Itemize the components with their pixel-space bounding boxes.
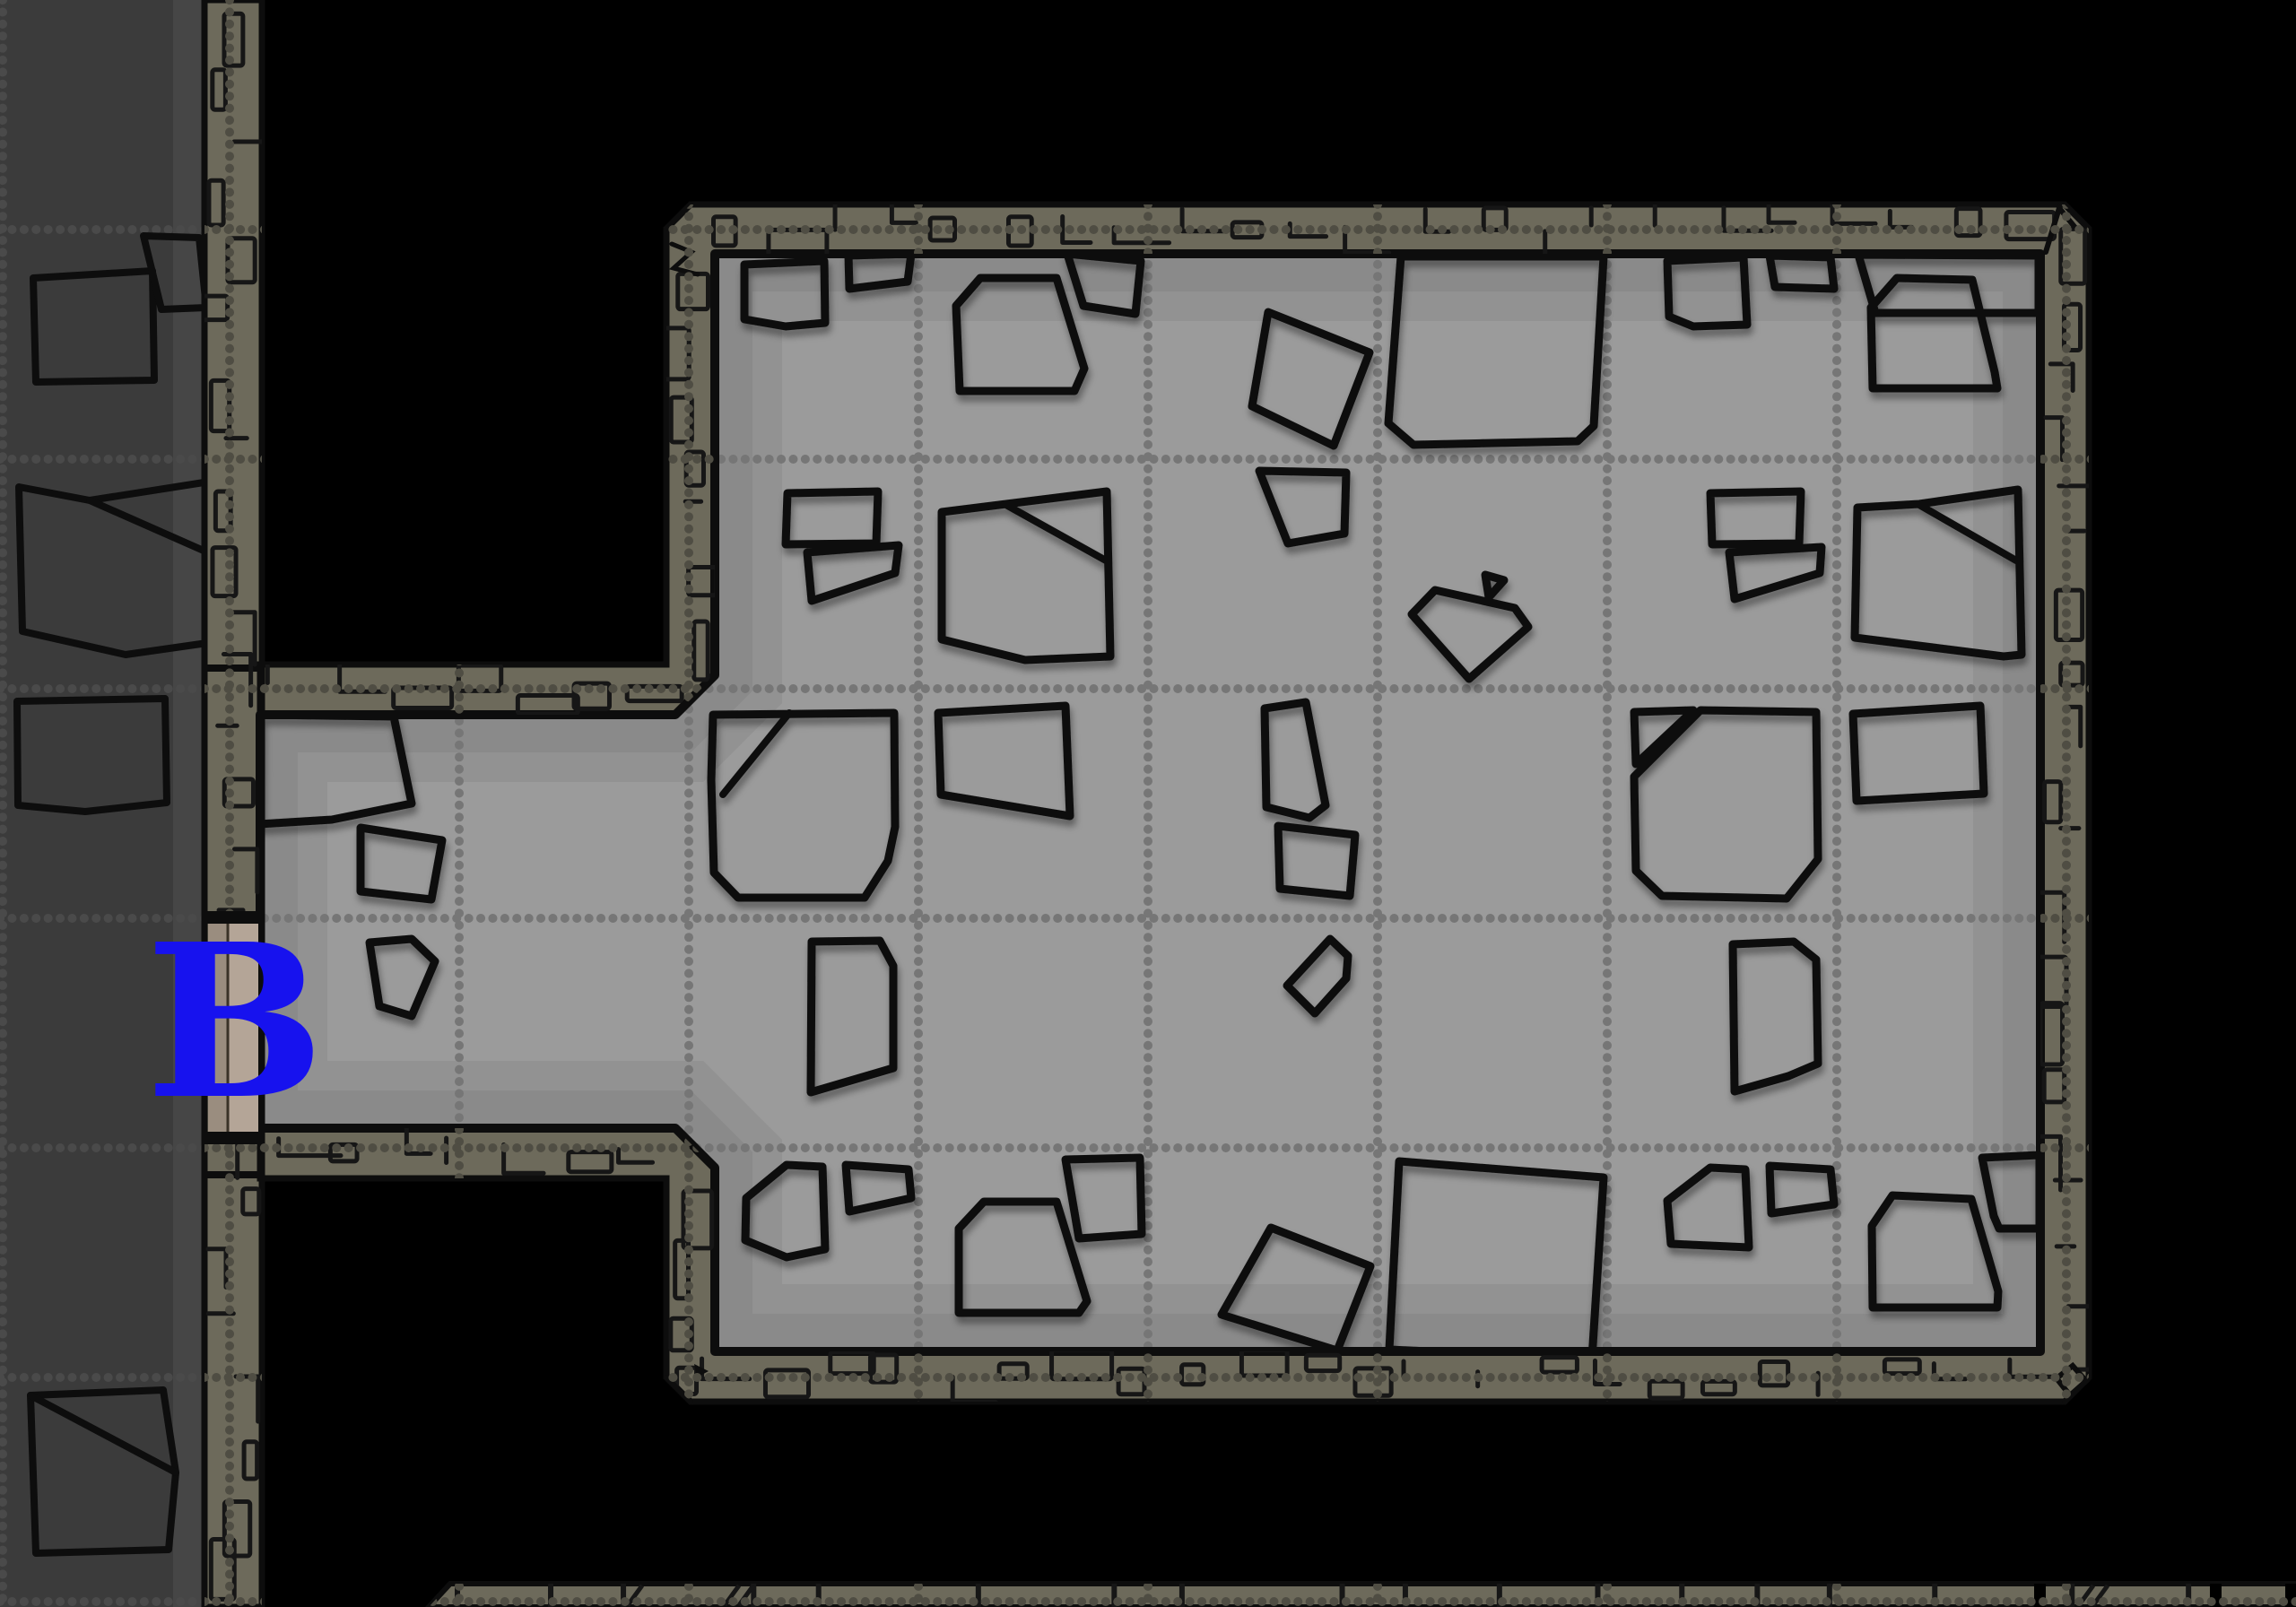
dungeon-map-viewport[interactable]: B (0, 0, 2296, 1607)
room-label-b: B (145, 897, 324, 1146)
dungeon-map: B (0, 0, 2296, 1607)
